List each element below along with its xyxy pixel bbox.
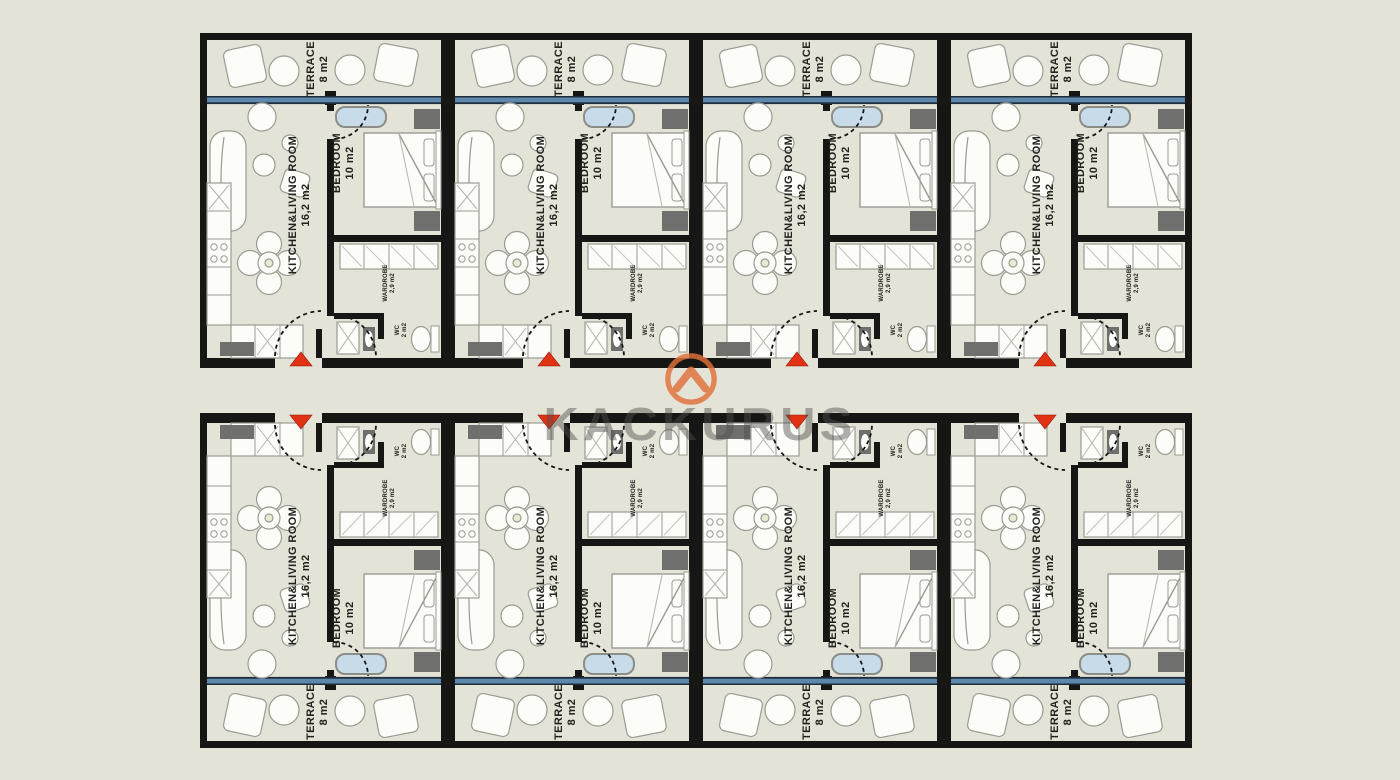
top-unit-2 — [448, 33, 696, 368]
bottom-unit-4 — [944, 413, 1192, 748]
bottom-unit-1 — [200, 413, 448, 748]
bottom-unit-3 — [696, 413, 944, 748]
brand-watermark-text: KACKURUS — [544, 397, 857, 451]
top-unit-1 — [200, 33, 448, 368]
top-unit-4 — [944, 33, 1192, 368]
floor-plan-canvas: TERRACE8 m2KITCHEN&LIVING ROOM16,2 m2BED… — [0, 0, 1400, 780]
bottom-unit-2 — [448, 413, 696, 748]
top-unit-3 — [696, 33, 944, 368]
